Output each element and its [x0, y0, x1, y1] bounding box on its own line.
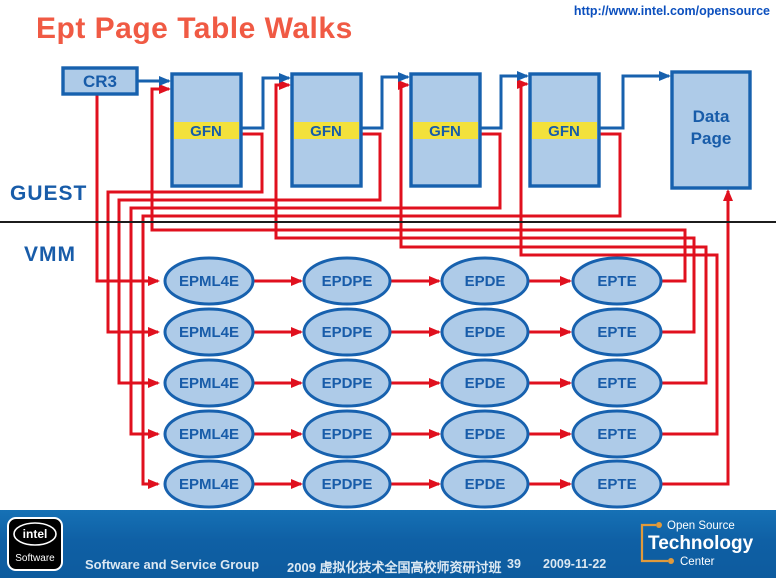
node-epdpe-4: EPDPE	[304, 411, 390, 457]
open-source-technology-center-logo: Open Source Technology Center	[630, 515, 770, 571]
svg-text:EPML4E: EPML4E	[179, 476, 239, 493]
svg-text:EPDPE: EPDPE	[322, 273, 373, 290]
svg-text:EPDPE: EPDPE	[322, 375, 373, 392]
vmm-zone-label: VMM	[24, 243, 76, 266]
svg-text:EPDE: EPDE	[465, 324, 506, 341]
node-epte-3: EPTE	[573, 360, 661, 406]
ostc-technology-text: Technology	[648, 533, 754, 554]
walk-cr3-to-row1	[97, 94, 158, 281]
ostc-dot-top-icon	[656, 522, 662, 528]
intel-brand-text: intel	[23, 527, 48, 541]
gfn-label-2: GFN	[310, 123, 342, 140]
node-epte-5: EPTE	[573, 461, 661, 507]
svg-text:EPTE: EPTE	[597, 375, 636, 392]
ostc-open-source-text: Open Source	[667, 520, 735, 532]
svg-text:EPDE: EPDE	[465, 273, 506, 290]
cr3-label: CR3	[83, 72, 117, 91]
footer-bar: intel Software Software and Service Grou…	[0, 510, 776, 578]
svg-text:EPDE: EPDE	[465, 426, 506, 443]
footer-page-number: 39	[507, 557, 521, 571]
guest-page-table-1: GFN	[172, 74, 241, 186]
svg-text:EPDE: EPDE	[465, 476, 506, 493]
node-epte-2: EPTE	[573, 309, 661, 355]
node-epdpe-2: EPDPE	[304, 309, 390, 355]
guest-page-table-4: GFN	[530, 74, 599, 186]
footer-date: 2009-11-22	[543, 557, 606, 571]
svg-text:EPML4E: EPML4E	[179, 426, 239, 443]
footer-event-label: 2009 虚拟化技术全国高校师资研讨班	[287, 557, 502, 576]
svg-text:EPTE: EPTE	[597, 273, 636, 290]
svg-text:EPML4E: EPML4E	[179, 324, 239, 341]
node-epde-5: EPDE	[442, 461, 528, 507]
node-epde-4: EPDE	[442, 411, 528, 457]
gfn-label-3: GFN	[429, 123, 461, 140]
node-epml4e-1: EPML4E	[165, 258, 253, 304]
node-epml4e-4: EPML4E	[165, 411, 253, 457]
data-page-label-line1: Data	[693, 107, 730, 126]
cr3-box: CR3	[63, 68, 137, 94]
node-epml4e-3: EPML4E	[165, 360, 253, 406]
data-page-box: Data Page	[672, 72, 750, 188]
ostc-dot-bottom-icon	[668, 558, 674, 564]
data-page-label-line2: Page	[691, 129, 732, 148]
guest-zone-label: GUEST	[10, 182, 87, 205]
svg-text:EPDPE: EPDPE	[322, 426, 373, 443]
gfn4-to-datapage	[598, 76, 669, 128]
ostc-center-text: Center	[680, 556, 715, 568]
footer-group-label: Software and Service Group	[85, 557, 259, 572]
svg-text:EPTE: EPTE	[597, 476, 636, 493]
node-epdpe-5: EPDPE	[304, 461, 390, 507]
svg-text:EPDPE: EPDPE	[322, 476, 373, 493]
node-epde-1: EPDE	[442, 258, 528, 304]
node-epde-3: EPDE	[442, 360, 528, 406]
intel-software-logo: intel Software	[7, 517, 63, 571]
intel-product-text: Software	[15, 553, 55, 564]
node-epml4e-5: EPML4E	[165, 461, 253, 507]
svg-text:EPTE: EPTE	[597, 426, 636, 443]
svg-text:EPML4E: EPML4E	[179, 375, 239, 392]
svg-text:EPDPE: EPDPE	[322, 324, 373, 341]
node-epde-2: EPDE	[442, 309, 528, 355]
gfn-label-4: GFN	[548, 123, 580, 140]
svg-text:EPTE: EPTE	[597, 324, 636, 341]
node-epte-1: EPTE	[573, 258, 661, 304]
svg-text:EPML4E: EPML4E	[179, 273, 239, 290]
gfn-label-1: GFN	[190, 123, 222, 140]
node-epte-4: EPTE	[573, 411, 661, 457]
node-epdpe-1: EPDPE	[304, 258, 390, 304]
node-epml4e-2: EPML4E	[165, 309, 253, 355]
svg-text:EPDE: EPDE	[465, 375, 506, 392]
guest-page-table-2: GFN	[292, 74, 361, 186]
ept-walk-diagram: CR3 GFN GFN GFN GFN Data Page GUEST VMM …	[0, 0, 776, 510]
node-epdpe-3: EPDPE	[304, 360, 390, 406]
guest-page-table-3: GFN	[411, 74, 480, 186]
